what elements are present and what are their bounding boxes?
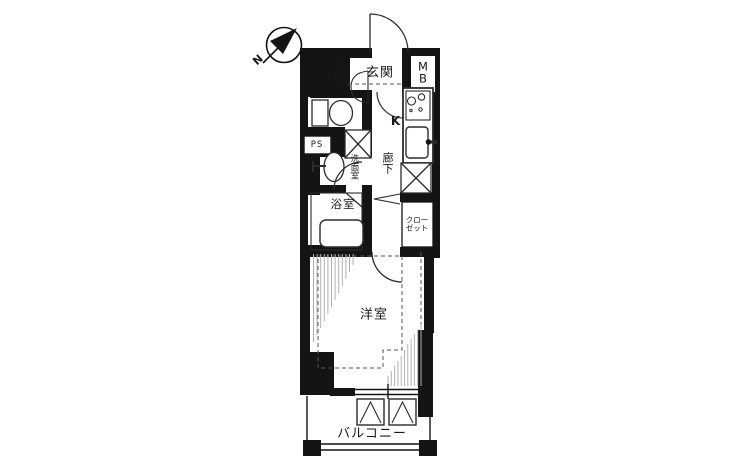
compass-icon [263, 28, 302, 64]
balcony-hatch-units [357, 399, 416, 425]
shoe-box-label: 下足入 [332, 62, 343, 86]
sliding-window [353, 384, 420, 399]
genkan-label: 玄関 [366, 62, 394, 81]
balcony-label: バルコニー [337, 423, 407, 442]
bathtub-icon [320, 220, 363, 247]
closet-label: クローゼット [405, 216, 429, 231]
kitchen-counter-icon [403, 88, 437, 163]
hatch-top-left [314, 254, 354, 342]
washroom-label: 洗面室 [348, 154, 360, 180]
floor-plan: N 玄関 下足入 MB K 廊下 PS 洗面室 浴室 クローゼット 洋室 バルコ… [0, 0, 730, 470]
closet-door-swing [374, 194, 400, 204]
bathroom-label: 浴室 [331, 196, 356, 212]
meter-box-label: MB [417, 61, 430, 84]
hallway-label: 廊下 [379, 152, 395, 174]
hatch-bottom-right [388, 324, 421, 386]
pipe-space-label: PS [311, 140, 324, 150]
toilet-icon [312, 100, 353, 126]
western-room-label: 洋室 [360, 304, 388, 323]
entrance-door-arc [370, 14, 408, 52]
refrigerator-space-icon [401, 163, 431, 193]
kitchen-label: K [391, 114, 401, 128]
